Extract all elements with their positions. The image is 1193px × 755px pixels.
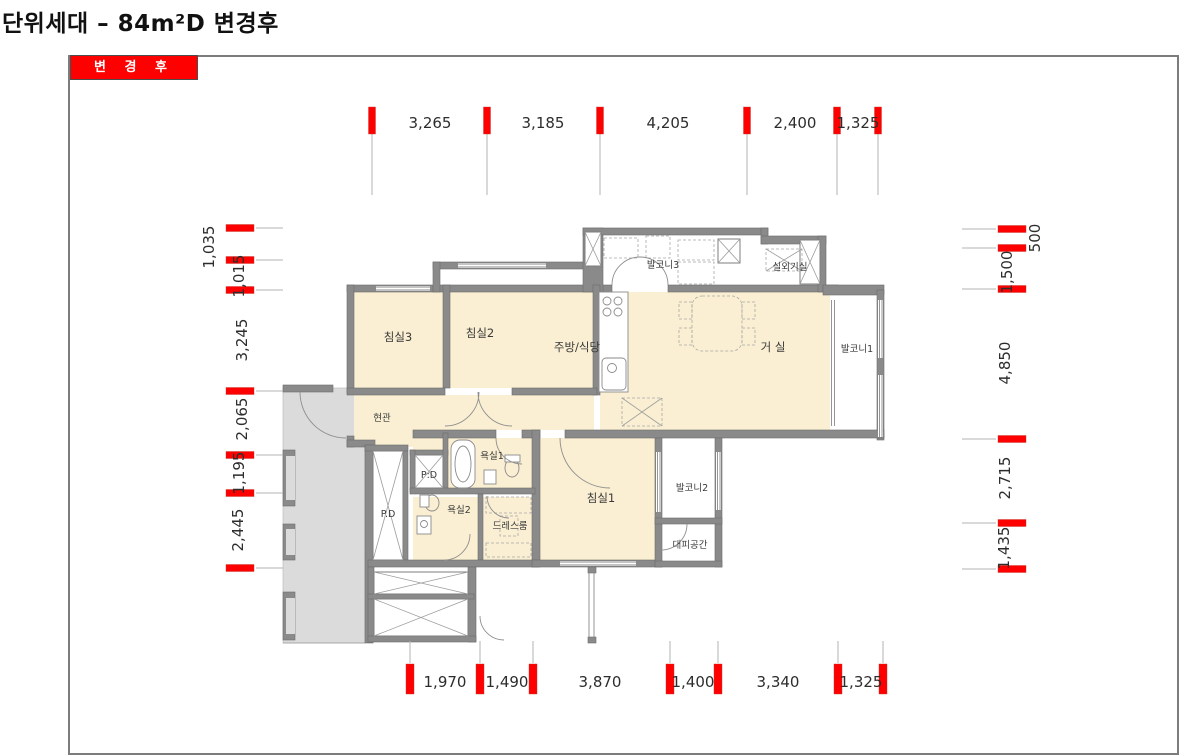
dim-top-3: 4,205 [647,114,690,132]
room-label-balcony-2: 발코니2 [676,483,708,494]
dim-bottom-2: 1,490 [486,673,529,691]
dim-bottom-6: 1,325 [840,673,883,691]
dim-bottom-1: 1,970 [424,673,467,691]
floor-plan-svg: 발코니3 실외기실 침실3 침실2 주방/식당 거 실 발코니1 현관 P:D … [0,0,1193,710]
dim-left-4: 2,065 [233,398,251,441]
room-label-pipe-duct-left: P.D [381,509,396,520]
room-label-entrance: 현관 [373,413,391,424]
room-label-living-room: 거 실 [761,340,786,354]
kitchen-sink [602,358,626,390]
dim-left-2: 1,015 [230,255,248,298]
room-label-kitchen-dining: 주방/식당 [554,340,601,354]
room-label-pipe-duct-upper: P:D [421,470,437,481]
dim-top-4: 2,400 [774,114,817,132]
dim-left-3: 3,245 [233,319,251,362]
dim-right-3: 4,850 [996,342,1014,385]
room-label-balcony-3: 발코니3 [647,260,679,271]
dim-left-6: 2,445 [229,509,247,552]
room-label-bathroom-2: 욕실2 [447,505,471,516]
dim-top-2: 3,185 [522,114,565,132]
dimension-chain-bottom: 1,970 1,490 3,870 1,400 3,340 1,325 [406,641,887,694]
room-label-bedroom-1: 침실1 [587,491,615,505]
room-label-bedroom-3: 침실3 [384,330,412,344]
common-corridor [283,385,365,643]
dim-right-2: 1,500 [998,251,1016,294]
dimension-chain-left: 1,035 1,015 3,245 2,065 1,195 2,445 [200,225,283,572]
dim-top-1: 3,265 [409,114,452,132]
room-label-bathroom-1: 욕실1 [480,451,504,462]
room-label-refuge-space: 대피공간 [673,540,708,551]
dimension-chain-top: 3,265 3,185 4,205 2,400 1,325 [369,107,882,195]
dim-right-1: 500 [1026,224,1044,253]
dim-bottom-3: 3,870 [579,673,622,691]
dim-bottom-4: 1,400 [672,673,715,691]
dim-right-4: 2,715 [996,457,1014,500]
dim-bottom-5: 3,340 [757,673,800,691]
dim-top-5: 1,325 [837,114,880,132]
dim-left-1: 1,035 [200,226,218,269]
dim-right-5: 1,435 [995,527,1013,570]
after-change-badge: 변 경 후 [70,55,198,80]
dim-left-5: 1,195 [230,452,248,495]
room-label-dress-room: 드레스룸 [493,521,528,532]
room-label-bedroom-2: 침실2 [466,326,494,340]
room-label-balcony-1: 발코니1 [841,344,873,355]
dimension-chain-right: 500 1,500 4,850 2,715 1,435 [962,224,1044,573]
room-label-outdoor-unit: 실외기실 [773,261,808,273]
